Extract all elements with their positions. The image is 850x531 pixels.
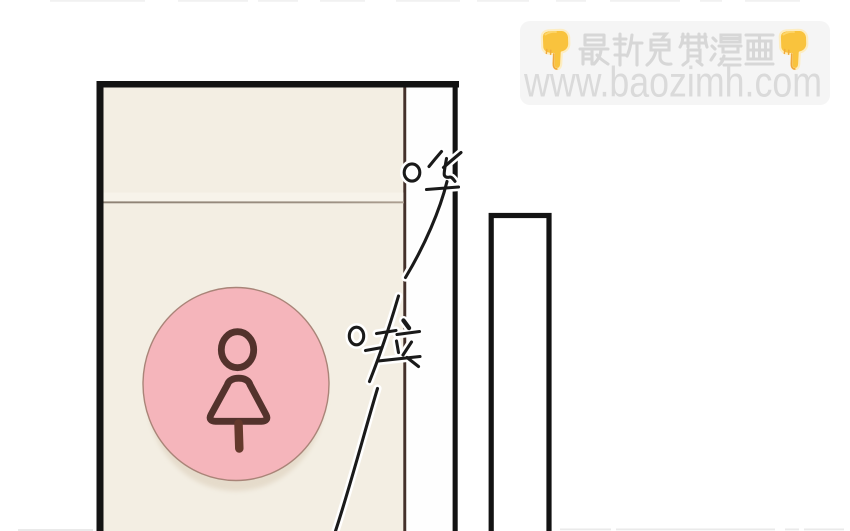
- svg-text:www.baozimh.com: www.baozimh.com: [523, 59, 822, 107]
